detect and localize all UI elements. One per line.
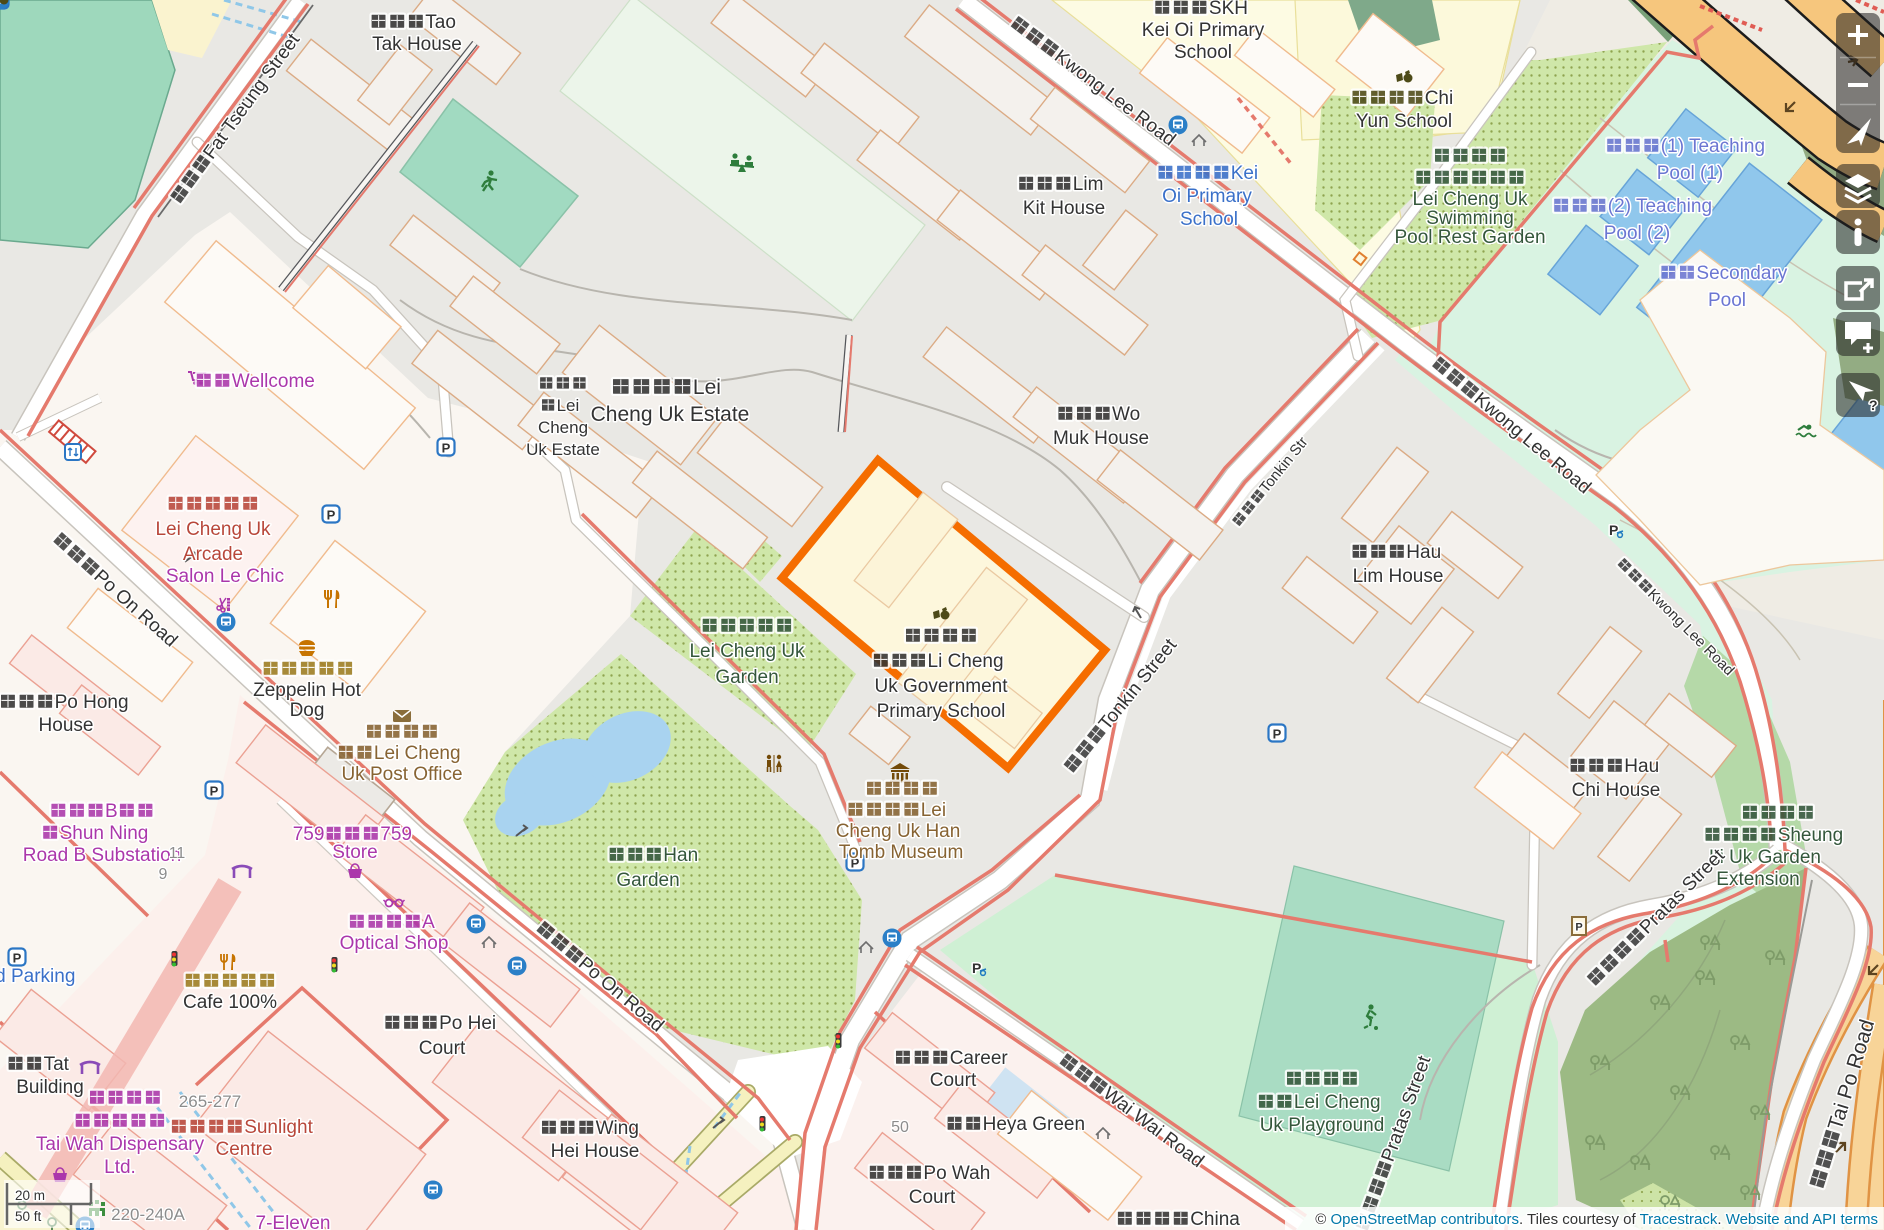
svg-text:Pool Rest Garden: Pool Rest Garden [1394, 227, 1545, 248]
svg-text:Uk Estate: Uk Estate [526, 440, 600, 459]
svg-text:Road B Substation: Road B Substation [23, 845, 181, 866]
svg-text:Po Hei: Po Hei [439, 1013, 496, 1034]
svg-text:Career: Career [950, 1048, 1009, 1069]
svg-text:School: School [1174, 42, 1232, 63]
svg-text:Tai Wah Dispensary: Tai Wah Dispensary [36, 1134, 205, 1155]
svg-text:Wo: Wo [1112, 404, 1140, 425]
svg-text:759: 759 [293, 824, 325, 845]
svg-text:China: China [1190, 1209, 1240, 1230]
svg-text:Heya Green: Heya Green [983, 1114, 1085, 1135]
svg-text:Cheng Uk Estate: Cheng Uk Estate [591, 403, 750, 426]
svg-text:Lei Cheng Uk: Lei Cheng Uk [689, 641, 805, 662]
svg-text:P: P [1575, 922, 1582, 934]
svg-text:Po Hong: Po Hong [55, 692, 129, 713]
svg-text:Lei Cheng: Lei Cheng [374, 743, 461, 764]
svg-text:Kei Oi Primary: Kei Oi Primary [1142, 20, 1265, 41]
svg-text:9: 9 [159, 866, 168, 883]
svg-text:Extension: Extension [1716, 869, 1799, 890]
svg-text:Hau: Hau [1406, 542, 1441, 563]
svg-text:Zeppelin Hot: Zeppelin Hot [253, 680, 361, 701]
svg-text:SKH: SKH [1209, 0, 1248, 19]
svg-text:50 ft: 50 ft [15, 1209, 42, 1224]
svg-text:Shun Ning: Shun Ning [60, 823, 149, 844]
svg-text:Arcade: Arcade [183, 544, 243, 565]
svg-text:7-Eleven: 7-Eleven [256, 1213, 331, 1230]
svg-text:School: School [1180, 209, 1238, 230]
svg-text:Chi: Chi [1425, 88, 1454, 109]
svg-text:Wellcome: Wellcome [232, 371, 315, 392]
svg-text:Cheng Uk Han: Cheng Uk Han [836, 821, 961, 842]
svg-text:Lei Cheng: Lei Cheng [1294, 1092, 1381, 1113]
svg-text:© OpenStreetMap contributors.: © OpenStreetMap contributors. Tiles cour… [1315, 1211, 1878, 1228]
svg-text:Ltd.: Ltd. [104, 1157, 136, 1178]
svg-text:11: 11 [169, 845, 186, 862]
svg-text:Garden: Garden [715, 667, 778, 688]
svg-text:Centre: Centre [215, 1139, 272, 1160]
svg-text:?: ? [1869, 397, 1878, 413]
svg-text:Hei House: Hei House [551, 1141, 640, 1162]
svg-text:Swimming: Swimming [1426, 208, 1514, 229]
svg-text:Lim House: Lim House [1353, 566, 1444, 587]
svg-text:Cheng: Cheng [538, 418, 588, 437]
svg-text:Court: Court [930, 1070, 977, 1091]
svg-text:(2) Teaching: (2) Teaching [1608, 196, 1712, 217]
svg-text:Sheung: Sheung [1778, 825, 1844, 846]
svg-text:Po Wah: Po Wah [923, 1163, 990, 1184]
svg-text:Pool: Pool [1708, 290, 1746, 311]
svg-text:Yun School: Yun School [1356, 111, 1452, 132]
svg-text:Salon Le Chic: Salon Le Chic [166, 566, 284, 587]
svg-text:Garden: Garden [616, 870, 679, 891]
svg-text:Lei: Lei [921, 800, 946, 821]
svg-text:Pool (1): Pool (1) [1657, 163, 1724, 184]
svg-text:Tak House: Tak House [372, 34, 462, 55]
svg-text:(1) Teaching: (1) Teaching [1661, 136, 1765, 157]
svg-text:nd Parking: nd Parking [0, 966, 75, 987]
svg-text:Uk Post Office: Uk Post Office [341, 764, 462, 785]
svg-text:Tao: Tao [425, 12, 456, 33]
svg-text:Kei: Kei [1231, 163, 1258, 184]
svg-text:220-240A: 220-240A [111, 1205, 185, 1224]
svg-text:Cafe 100%: Cafe 100% [183, 992, 277, 1013]
svg-text:Li Cheng: Li Cheng [928, 651, 1004, 672]
svg-text:759: 759 [380, 824, 412, 845]
svg-text:Lei: Lei [557, 396, 580, 415]
svg-text:Sunlight: Sunlight [244, 1117, 313, 1138]
svg-text:Hau: Hau [1624, 756, 1659, 777]
svg-text:Lei: Lei [693, 376, 721, 399]
svg-text:265-277: 265-277 [179, 1092, 241, 1111]
svg-text:Uk Government: Uk Government [874, 676, 1008, 697]
svg-text:Han: Han [663, 845, 698, 866]
svg-text:Chi House: Chi House [1572, 780, 1661, 801]
svg-text:Tomb Museum: Tomb Museum [839, 842, 964, 863]
svg-text:50: 50 [891, 1119, 909, 1136]
svg-text:Store: Store [332, 842, 377, 863]
svg-text:B: B [105, 801, 118, 822]
svg-text:House: House [39, 715, 94, 736]
svg-text:Optical Shop: Optical Shop [340, 933, 449, 954]
svg-text:Lei Cheng Uk: Lei Cheng Uk [155, 519, 271, 540]
svg-text:Muk House: Muk House [1053, 428, 1149, 449]
svg-text:Uk Playground: Uk Playground [1260, 1115, 1385, 1136]
svg-text:Lei Cheng Uk: Lei Cheng Uk [1412, 189, 1528, 210]
svg-text:Lim: Lim [1073, 174, 1104, 195]
svg-text:20 m: 20 m [15, 1188, 45, 1203]
svg-text:Wing: Wing [596, 1118, 639, 1139]
svg-text:Tat: Tat [44, 1054, 70, 1075]
svg-text:Pool (2): Pool (2) [1604, 223, 1671, 244]
svg-text:Building: Building [16, 1077, 84, 1098]
svg-text:Court: Court [419, 1038, 466, 1059]
svg-text:Oi Primary: Oi Primary [1162, 186, 1252, 207]
svg-text:Court: Court [909, 1187, 956, 1208]
svg-text:Dog: Dog [290, 700, 325, 721]
svg-text:Secondary: Secondary [1696, 263, 1787, 284]
svg-text:Kit House: Kit House [1023, 198, 1105, 219]
svg-text:Primary School: Primary School [877, 701, 1006, 722]
svg-text:A: A [422, 912, 435, 933]
